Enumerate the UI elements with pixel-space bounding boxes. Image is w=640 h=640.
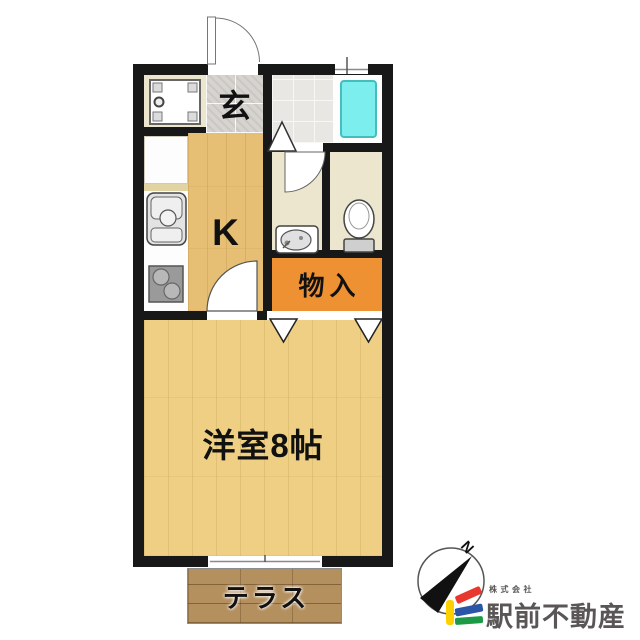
room-bathroom xyxy=(272,75,333,143)
kitchen-door-opening xyxy=(207,311,257,320)
terrace-window-opening xyxy=(208,556,322,567)
entrance-door-icon xyxy=(208,17,260,64)
refrigerator-niche xyxy=(144,136,188,184)
terrace-label: テラス xyxy=(220,578,309,615)
room-toilet xyxy=(330,152,382,250)
logo-yellow-bar xyxy=(446,600,454,625)
logo-blue-bar xyxy=(454,603,483,616)
north-label: N xyxy=(453,534,480,562)
logo-green-bar xyxy=(455,616,483,625)
bathtub-icon xyxy=(340,80,377,138)
storage-label: 物入 xyxy=(293,266,360,303)
terrace: テラス xyxy=(187,568,342,624)
room-laundry xyxy=(144,75,206,127)
western-room-label: 洋室8帖 xyxy=(144,419,382,467)
logo-red-bar xyxy=(455,586,483,604)
room-entrance: 玄 xyxy=(206,75,263,133)
counter-divider xyxy=(144,184,188,191)
room-storage: 物入 xyxy=(272,258,382,311)
entrance-label: 玄 xyxy=(218,81,250,127)
company-prefix: 株式会社 xyxy=(489,584,535,595)
closet-door-opening xyxy=(267,311,382,320)
kitchen-label: K xyxy=(188,212,263,254)
kitchen-counter xyxy=(144,191,188,311)
room-washroom xyxy=(272,152,322,250)
entrance-door-opening xyxy=(208,64,258,75)
company-name: 駅前不動産 xyxy=(486,595,626,634)
bathroom-window-opening xyxy=(335,64,368,74)
washroom-door-opening xyxy=(285,143,323,152)
